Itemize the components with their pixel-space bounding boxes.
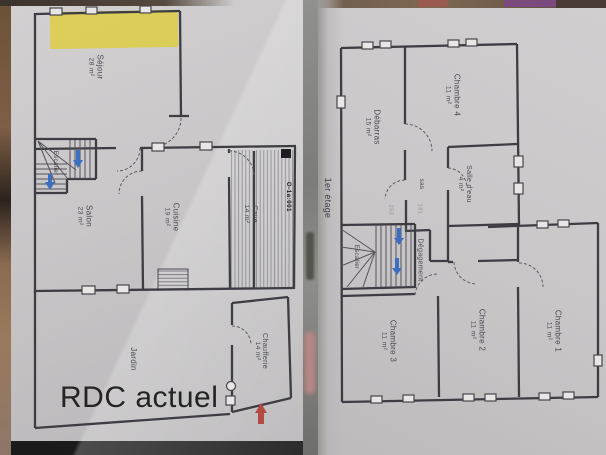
room-label-debarras: Débarras 15 m² [362,109,381,144]
room-label-chaufferie: Chaufferie 14 m² [252,333,270,369]
etage-plan-drawing [318,0,606,455]
stair-direction-arrows-etage [392,228,404,275]
cellar-steps [158,269,188,290]
plan-stamp: O-1a:001 [283,182,291,212]
stamp-block [281,149,291,158]
room-label-salle-deau: Salle d'eau 4 m² [455,165,473,203]
room-label-degagement: Dégagement [415,238,424,281]
room-label-chambre2: Chambre 2 11 m² [467,309,486,351]
room-label-cave: Cave 14 m² [241,205,259,224]
room-label-chambre4: Chambre 4 11 m² [442,74,461,116]
floorplan-photo-collage: Séjour 28 m² Salon 23 m² Cuisine 19 m² C… [0,0,606,455]
room-label-chambre3: Chambre 3 11 m² [378,320,397,362]
pencil-note-right: 181 [415,204,422,215]
room-label-chambre1: Chambre 1 11 m² [543,310,562,352]
yellow-highlight [50,10,179,49]
gap-dark-marks [306,232,314,280]
pencil-note-left: 253 [386,205,393,216]
room-label-sas: sas [417,179,425,190]
room-label-cuisine: Cuisine 19 m² [161,203,180,232]
gap-pink-smudge [305,332,315,394]
rdc-plan-title: RDC actuel [60,381,218,415]
photo-etage-plan: 1er étage Débarras 15 m² Chambre 4 11 m²… [318,0,606,455]
cave-hatch-right [256,150,294,288]
room-label-jardin: Jardin [128,347,138,371]
room-label-sejour: Séjour 28 m² [85,55,104,80]
room-label-escalier-etage: Escalier [352,245,360,270]
floor-note: 1er étage [321,178,333,219]
photo-rdc-plan: Séjour 28 m² Salon 23 m² Cuisine 19 m² C… [0,0,303,455]
room-label-escalier-rdc: Escalier [51,151,59,176]
room-label-salon: Salon 23 m² [74,205,93,227]
